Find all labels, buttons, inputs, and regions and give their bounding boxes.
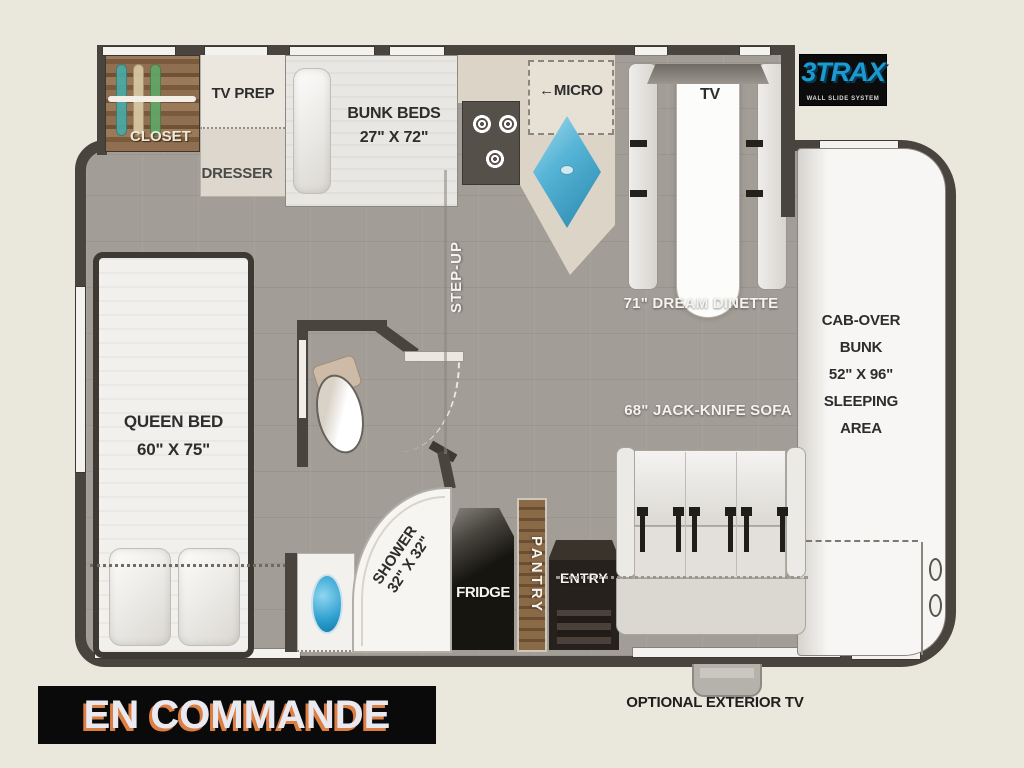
- seatbelt-icon: [630, 190, 647, 197]
- sofa-seat: [634, 526, 786, 578]
- cab-step-icon: [929, 558, 942, 581]
- burner-icon: [497, 113, 519, 135]
- window: [635, 47, 667, 55]
- dresser-cabinet: DRESSER: [200, 129, 285, 197]
- tv-label: TV: [655, 86, 765, 104]
- cab-step-column: [921, 542, 945, 655]
- rv-floorplan: CLOSET TV PREP DRESSER BUNK BEDS 27" X 7…: [0, 0, 1024, 768]
- sofa-cushion-divider: [685, 452, 686, 576]
- entry-door-steps: ENTRY: [549, 540, 619, 650]
- dinette-bench-left: [628, 63, 658, 290]
- pillow: [178, 548, 240, 646]
- closet: CLOSET: [105, 55, 200, 152]
- window: [390, 47, 444, 55]
- window: [290, 47, 374, 55]
- stove-cooktop: [462, 101, 520, 185]
- exterior-tv-mount: [692, 664, 762, 697]
- sink-drain-icon: [560, 165, 574, 175]
- bunk-beds: BUNK BEDS 27" X 72": [285, 55, 458, 207]
- pillow: [293, 68, 331, 194]
- vanity-sink-icon: [311, 574, 343, 634]
- half-wall: [404, 351, 464, 362]
- slide-boundary-dashed-line: [90, 564, 298, 567]
- slide-boundary-dashed-line: [806, 540, 918, 542]
- pillow: [109, 548, 171, 646]
- 3trax-logo-tagline: WALL SLIDE SYSTEM: [800, 96, 886, 102]
- bunk-beds-label: BUNK BEDS 27" X 72": [330, 102, 458, 150]
- fridge-label: FRIDGE: [452, 584, 514, 601]
- status-banner-text: EN COMMANDE: [38, 693, 436, 738]
- sofa-armrest: [786, 447, 806, 578]
- sofa-cushion-divider: [736, 452, 737, 576]
- wall-segment: [285, 553, 297, 652]
- pantry-cabinet: PANTRY: [517, 498, 547, 652]
- tv-prep-label: TV PREP: [201, 85, 285, 102]
- seatbelt-icon: [746, 140, 763, 147]
- 3trax-logo: 3TRAX WALL SLIDE SYSTEM: [799, 54, 887, 106]
- step-edge-line: [444, 170, 447, 454]
- bathroom-vanity: [297, 553, 355, 652]
- optional-exterior-tv-label: OPTIONAL EXTERIOR TV: [590, 694, 840, 711]
- tv-prep-cabinet: TV PREP: [200, 55, 285, 129]
- window: [740, 47, 770, 55]
- seatbelt-icon: [630, 140, 647, 147]
- window: [205, 47, 267, 55]
- sofa-footrest: [616, 578, 806, 635]
- seatbelt-icon: [744, 510, 749, 552]
- seatbelt-icon: [640, 510, 645, 552]
- seatbelt-icon: [746, 190, 763, 197]
- seatbelt-icon: [780, 510, 785, 552]
- dinette-table: [676, 70, 740, 318]
- bunk-beds-title: BUNK BEDS: [330, 102, 458, 126]
- closet-rod-icon: [108, 96, 196, 102]
- queen-bed: QUEEN BED 60" X 75": [93, 252, 254, 658]
- cab-over-bunk-label: CAB-OVER BUNK 52" X 96" SLEEPING AREA: [798, 307, 924, 442]
- sofa-label: 68" JACK-KNIFE SOFA: [608, 402, 808, 419]
- dresser-label: DRESSER: [195, 165, 279, 182]
- microwave-label: ←MICRO: [530, 82, 612, 99]
- seatbelt-icon: [692, 510, 697, 552]
- 3trax-logo-text: 3TRAX: [800, 57, 886, 88]
- seatbelt-icon: [728, 510, 733, 552]
- dinette-label: 71" DREAM DINETTE: [612, 295, 790, 312]
- sofa-armrest: [616, 447, 636, 578]
- seatbelt-icon: [676, 510, 681, 552]
- window: [103, 47, 175, 55]
- bathroom-door-pocket: [299, 340, 306, 418]
- wall-segment: [781, 45, 795, 217]
- queen-bed-label: QUEEN BED 60" X 75": [99, 408, 248, 464]
- left-arrow-icon: ←: [539, 82, 554, 99]
- tv-mount: [647, 64, 769, 84]
- step-up-label: STEP-UP: [448, 222, 468, 332]
- slide-boundary-dashed-line: [556, 576, 808, 579]
- burner-icon: [484, 148, 506, 170]
- pantry-label: PANTRY: [519, 500, 545, 650]
- burner-icon: [471, 113, 493, 135]
- closet-label: CLOSET: [130, 128, 191, 145]
- cab-step-icon: [929, 594, 942, 617]
- bunk-beds-size: 27" X 72": [330, 126, 458, 150]
- status-banner: EN COMMANDE: [38, 686, 436, 744]
- window: [76, 287, 85, 472]
- refrigerator: FRIDGE: [452, 508, 514, 650]
- jack-knife-sofa: [634, 450, 786, 526]
